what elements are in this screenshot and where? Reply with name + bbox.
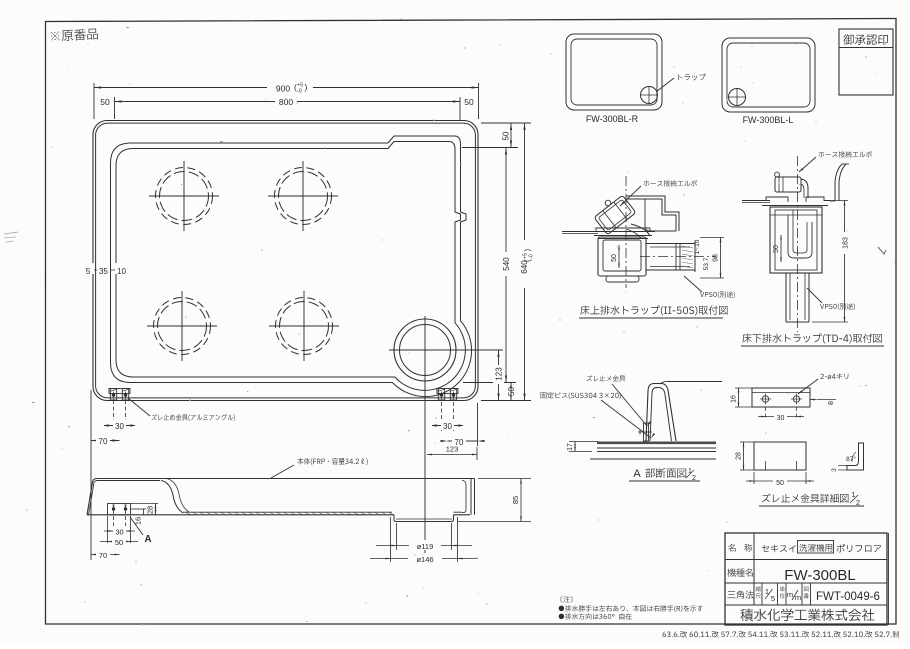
svg-text:30: 30 xyxy=(115,422,124,431)
svg-text:30: 30 xyxy=(777,415,785,422)
svg-text:30: 30 xyxy=(115,528,123,537)
svg-text:50: 50 xyxy=(611,254,618,262)
svg-text:FWT-0049-6: FWT-0049-6 xyxy=(816,591,880,603)
svg-text:98: 98 xyxy=(713,254,720,262)
svg-text:10: 10 xyxy=(117,267,126,276)
svg-text:-0: -0 xyxy=(528,254,534,259)
svg-text:3: 3 xyxy=(831,468,838,472)
svg-text:5: 5 xyxy=(86,267,91,276)
svg-text:-0: -0 xyxy=(297,88,302,94)
svg-text:17: 17 xyxy=(567,443,574,451)
svg-text:30: 30 xyxy=(443,422,452,431)
svg-text:50: 50 xyxy=(502,131,511,140)
svg-text:70: 70 xyxy=(99,437,108,446)
svg-text:183: 183 xyxy=(843,237,850,249)
svg-text:900: 900 xyxy=(276,84,290,94)
svg-text:m: m xyxy=(795,593,801,602)
svg-text:28: 28 xyxy=(146,506,155,514)
svg-text:28: 28 xyxy=(736,452,743,460)
svg-text:123: 123 xyxy=(446,445,459,454)
svg-text:50: 50 xyxy=(115,538,123,547)
svg-text:): ) xyxy=(305,82,308,92)
svg-text:FW-300BL-R: FW-300BL-R xyxy=(586,114,639,124)
svg-text:m: m xyxy=(787,590,793,599)
svg-text:50: 50 xyxy=(100,97,110,107)
svg-text:FW-300BL: FW-300BL xyxy=(784,567,855,584)
svg-text:540: 540 xyxy=(502,257,511,271)
svg-text:85: 85 xyxy=(511,496,520,504)
svg-text:ø146: ø146 xyxy=(416,555,433,564)
svg-text:50: 50 xyxy=(773,245,780,253)
svg-text:50: 50 xyxy=(464,97,474,107)
svg-text:A: A xyxy=(144,534,151,545)
svg-text:1~10: 1~10 xyxy=(694,239,701,254)
svg-text:FW-300BL-L: FW-300BL-L xyxy=(743,115,794,125)
svg-text:50: 50 xyxy=(776,480,784,487)
svg-text:53.7: 53.7 xyxy=(703,257,710,270)
svg-text:): ) xyxy=(523,249,532,252)
svg-text:16: 16 xyxy=(731,395,738,403)
svg-text:5: 5 xyxy=(771,594,775,603)
svg-text:8: 8 xyxy=(828,401,835,405)
svg-text:50: 50 xyxy=(507,387,516,396)
svg-text:A: A xyxy=(633,468,641,480)
svg-text:70: 70 xyxy=(99,551,107,560)
svg-text:ø119: ø119 xyxy=(417,542,434,551)
svg-text:87°: 87° xyxy=(846,455,856,463)
svg-text:35: 35 xyxy=(99,267,108,276)
svg-text:123: 123 xyxy=(495,367,504,381)
